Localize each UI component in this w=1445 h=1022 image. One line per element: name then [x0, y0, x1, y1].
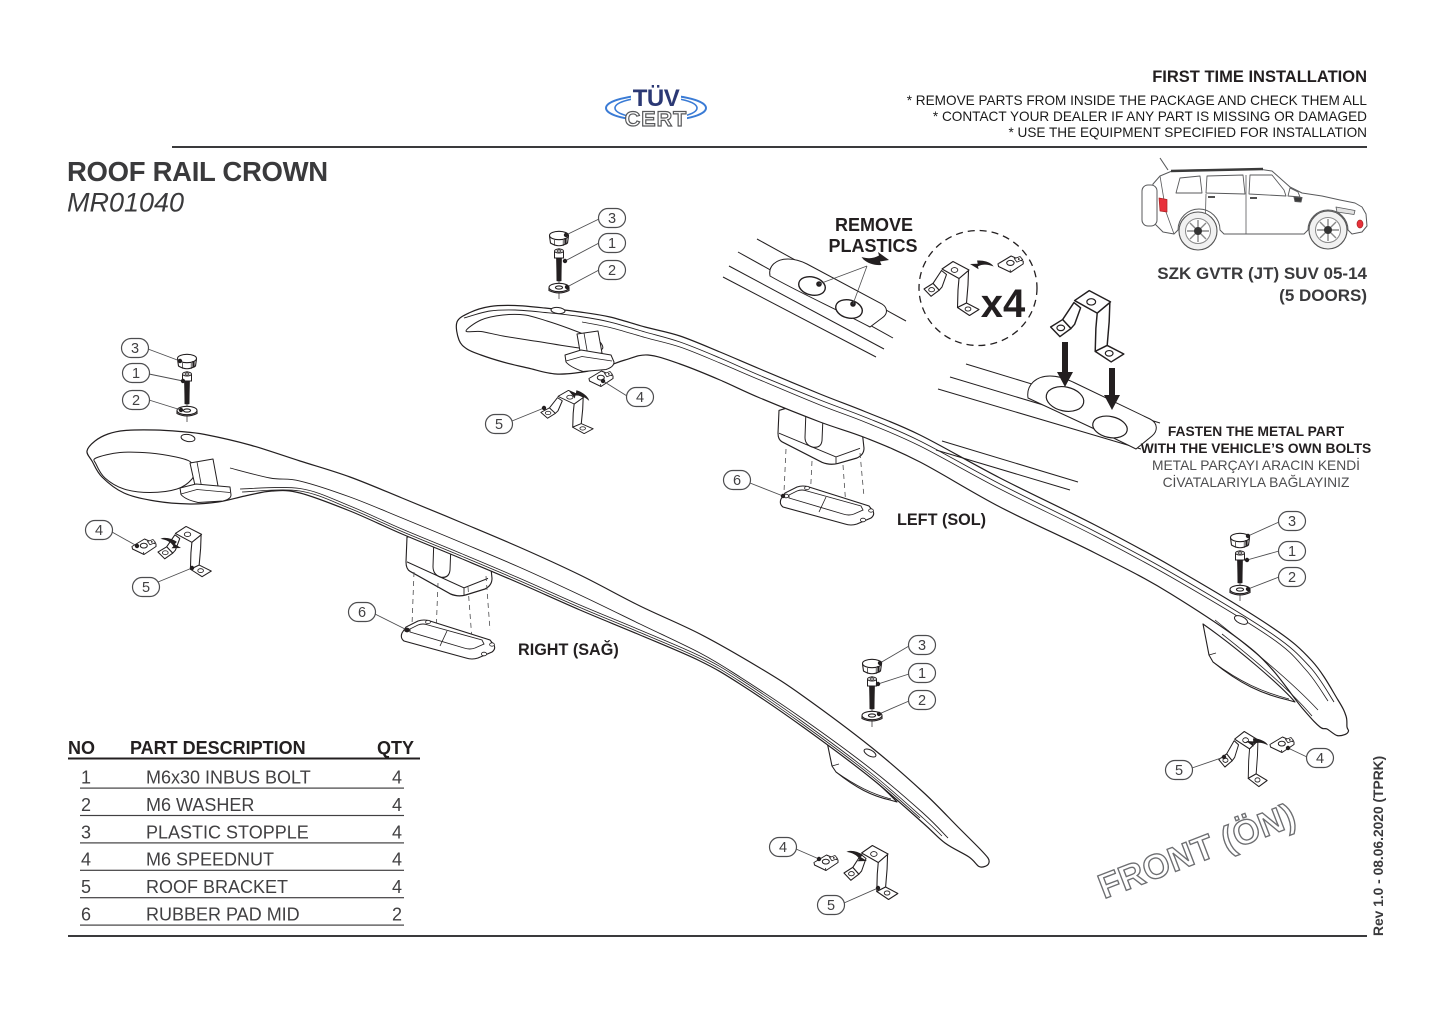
svg-text:FRONT (ÖN): FRONT (ÖN) — [1093, 795, 1301, 906]
svg-text:Rev 1.0 - 08.06.2020 (TPRK): Rev 1.0 - 08.06.2020 (TPRK) — [1371, 756, 1386, 936]
svg-text:2: 2 — [81, 795, 91, 815]
svg-text:1: 1 — [918, 666, 926, 682]
svg-text:PART DESCRIPTION: PART DESCRIPTION — [130, 738, 306, 758]
svg-text:CİVATALARIYLA BAĞLAYINIZ: CİVATALARIYLA BAĞLAYINIZ — [1163, 473, 1350, 490]
svg-text:RUBBER PAD MID: RUBBER PAD MID — [146, 905, 300, 925]
svg-text:2: 2 — [918, 693, 926, 709]
svg-text:* CONTACT YOUR DEALER IF ANY P: * CONTACT YOUR DEALER IF ANY PART IS MIS… — [933, 109, 1367, 124]
svg-text:METAL PARÇAYI ARACIN KENDİ: METAL PARÇAYI ARACIN KENDİ — [1152, 456, 1360, 473]
svg-text:LEFT (SOL): LEFT (SOL) — [897, 511, 986, 529]
svg-text:M6 WASHER: M6 WASHER — [146, 795, 254, 815]
svg-text:3: 3 — [918, 638, 926, 654]
svg-text:3: 3 — [1288, 514, 1296, 530]
svg-text:(5 DOORS): (5 DOORS) — [1279, 286, 1367, 305]
svg-text:4: 4 — [392, 768, 402, 788]
svg-text:5: 5 — [1175, 763, 1183, 779]
svg-text:6: 6 — [733, 473, 741, 489]
svg-text:5: 5 — [81, 877, 91, 897]
svg-text:QTY: QTY — [377, 738, 414, 758]
svg-text:1: 1 — [1288, 544, 1296, 560]
svg-text:PLASTIC STOPPLE: PLASTIC STOPPLE — [146, 822, 309, 842]
svg-text:FIRST TIME INSTALLATION: FIRST TIME INSTALLATION — [1152, 68, 1367, 86]
svg-text:RIGHT (SAĞ): RIGHT (SAĞ) — [518, 640, 619, 659]
svg-text:2: 2 — [392, 905, 402, 925]
svg-text:6: 6 — [358, 605, 366, 621]
svg-text:4: 4 — [392, 795, 402, 815]
svg-text:4: 4 — [636, 390, 644, 406]
svg-text:REMOVE: REMOVE — [835, 215, 913, 235]
svg-text:3: 3 — [608, 211, 616, 227]
svg-text:4: 4 — [779, 840, 787, 856]
svg-text:M6 SPEEDNUT: M6 SPEEDNUT — [146, 850, 274, 870]
svg-text:1: 1 — [608, 236, 616, 252]
svg-text:x4: x4 — [981, 282, 1026, 326]
svg-text:1: 1 — [132, 366, 140, 382]
svg-text:5: 5 — [827, 898, 835, 914]
svg-text:MR01040: MR01040 — [67, 188, 184, 218]
svg-text:* USE THE EQUIPMENT SPECIFIED: * USE THE EQUIPMENT SPECIFIED FOR INSTAL… — [1008, 125, 1367, 140]
svg-text:2: 2 — [132, 393, 140, 409]
svg-text:2: 2 — [608, 263, 616, 279]
svg-text:1: 1 — [81, 768, 91, 788]
svg-text:4: 4 — [81, 850, 91, 870]
svg-text:CERT: CERT — [625, 107, 688, 131]
svg-text:4: 4 — [1316, 751, 1324, 767]
svg-text:WITH THE VEHICLE’S OWN BOLTS: WITH THE VEHICLE’S OWN BOLTS — [1141, 441, 1371, 456]
svg-text:6: 6 — [81, 905, 91, 925]
svg-text:4: 4 — [392, 822, 402, 842]
svg-text:NO: NO — [68, 738, 95, 758]
svg-text:ROOF BRACKET: ROOF BRACKET — [146, 877, 288, 897]
svg-text:ROOF RAIL CROWN: ROOF RAIL CROWN — [67, 156, 328, 187]
svg-text:3: 3 — [131, 341, 139, 357]
svg-text:M6x30 INBUS BOLT: M6x30 INBUS BOLT — [146, 768, 311, 788]
svg-text:5: 5 — [495, 417, 503, 433]
svg-text:5: 5 — [142, 580, 150, 596]
svg-text:4: 4 — [392, 877, 402, 897]
svg-text:SZK GVTR (JT) SUV 05-14: SZK GVTR (JT) SUV 05-14 — [1157, 264, 1367, 283]
svg-text:4: 4 — [95, 523, 103, 539]
svg-text:FASTEN THE METAL PART: FASTEN THE METAL PART — [1168, 424, 1345, 439]
svg-text:4: 4 — [392, 850, 402, 870]
svg-text:* REMOVE PARTS FROM INSIDE THE: * REMOVE PARTS FROM INSIDE THE PACKAGE A… — [907, 93, 1368, 108]
svg-text:3: 3 — [81, 822, 91, 842]
svg-text:PLASTICS: PLASTICS — [828, 236, 917, 256]
svg-text:2: 2 — [1288, 570, 1296, 586]
